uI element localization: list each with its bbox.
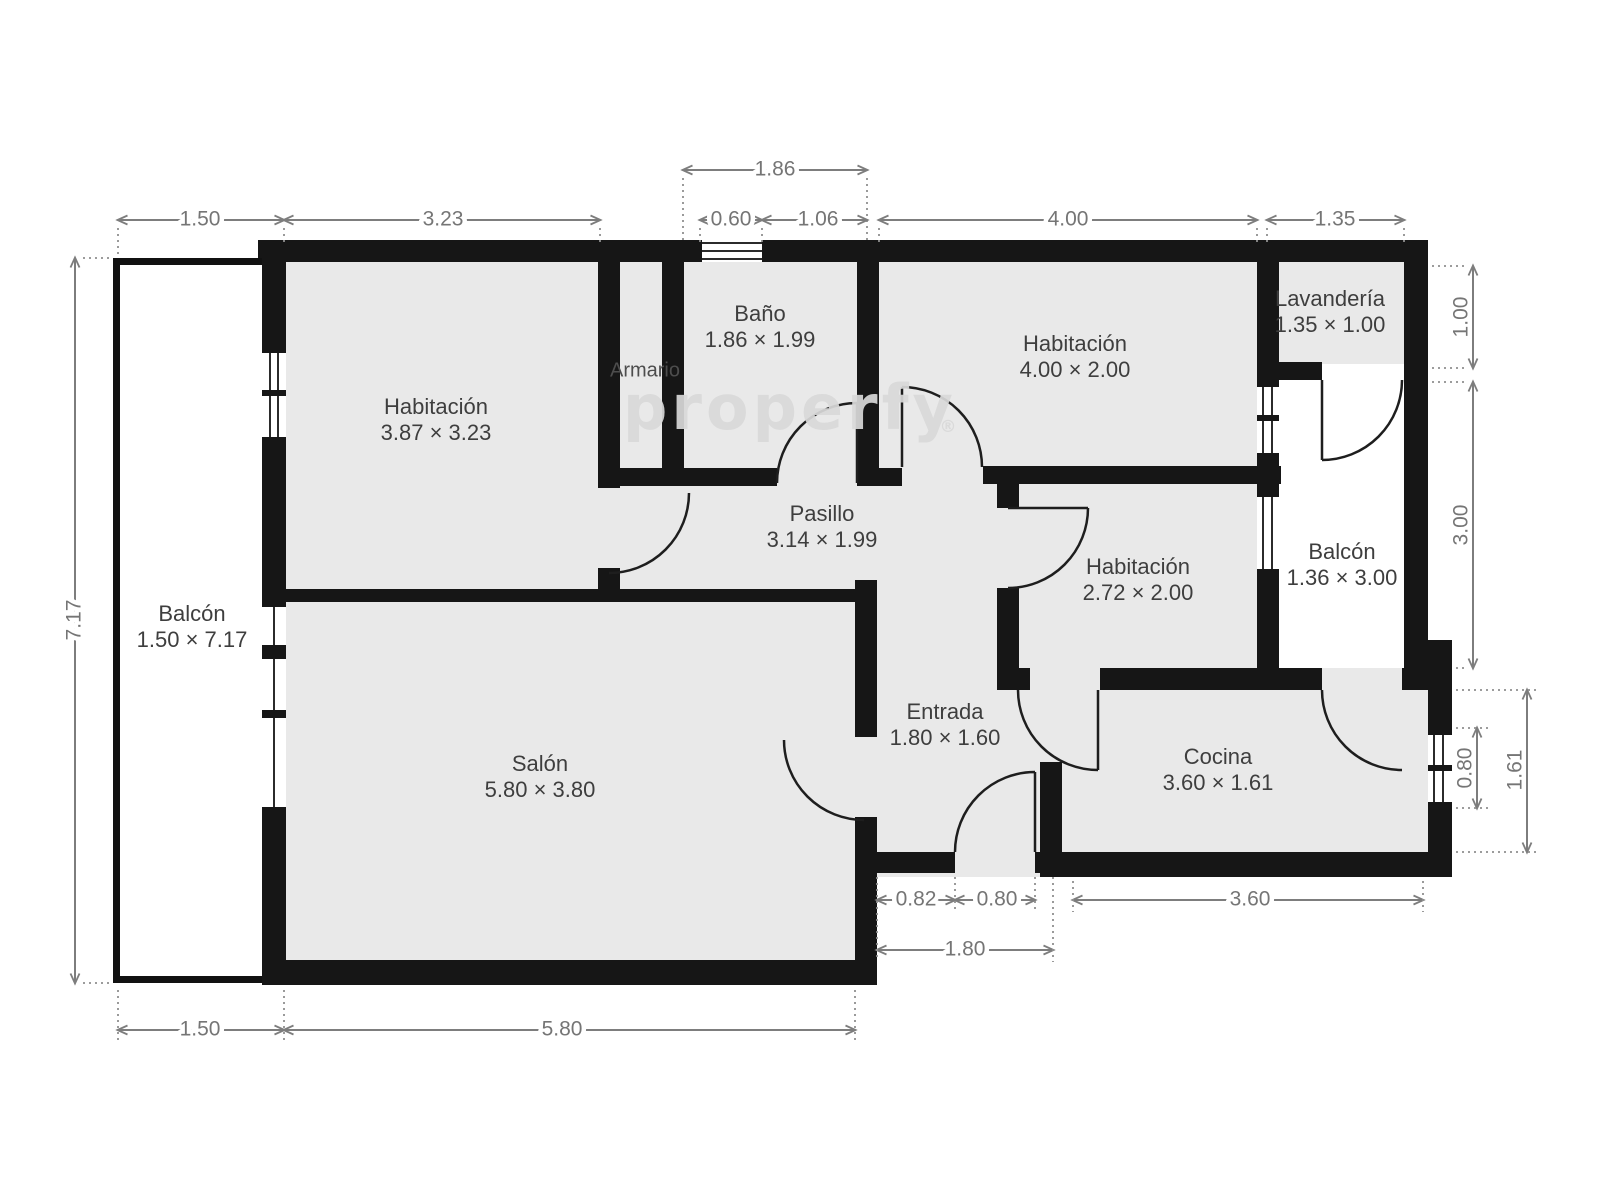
dim-top-1-06: 1.06 bbox=[798, 208, 839, 231]
wall-salon-right-a bbox=[855, 580, 877, 737]
label-habitacion-tr: Habitación 4.00 × 2.00 bbox=[1020, 331, 1131, 382]
window-habitacion-tl-icon bbox=[262, 348, 286, 442]
watermark: properfy ® bbox=[623, 371, 957, 444]
room-salon-floor bbox=[284, 589, 855, 962]
wall-entrada-cocina bbox=[1040, 762, 1062, 873]
svg-text:Habitación: Habitación bbox=[1023, 331, 1127, 356]
svg-text:Salón: Salón bbox=[512, 751, 568, 776]
window-habitacion-tr-icon bbox=[1257, 382, 1279, 458]
dim-right-1-61: 1.61 bbox=[1504, 750, 1527, 791]
dim-top-0-60: 0.60 bbox=[711, 208, 752, 231]
wall-lavanderia-bottom bbox=[1279, 362, 1322, 380]
dim-right-1-00: 1.00 bbox=[1450, 297, 1473, 338]
dim-left-7-17: 7.17 bbox=[63, 600, 86, 641]
dim-top-4-00: 4.00 bbox=[1048, 208, 1089, 231]
svg-text:1.36 × 3.00: 1.36 × 3.00 bbox=[1287, 565, 1398, 590]
dim-top-1-35: 1.35 bbox=[1315, 208, 1356, 231]
floor-plan-page: properfy ® 1.86 1.50 3.23 0.60 1.06 4.00… bbox=[0, 0, 1600, 1197]
dim-top-3-23: 3.23 bbox=[423, 208, 464, 231]
dim-top-1-86: 1.86 bbox=[755, 158, 796, 181]
wall-cocina-bottom bbox=[1040, 852, 1452, 877]
svg-text:Pasillo: Pasillo bbox=[790, 501, 855, 526]
svg-text:Habitación: Habitación bbox=[384, 394, 488, 419]
label-lavanderia: Lavandería 1.35 × 1.00 bbox=[1275, 286, 1386, 337]
wall-right-upper bbox=[1404, 240, 1428, 668]
dim-right-0-80: 0.80 bbox=[1454, 748, 1477, 789]
svg-text:Balcón: Balcón bbox=[158, 601, 225, 626]
wall-balcon-bottom-b bbox=[1402, 668, 1452, 690]
svg-text:Cocina: Cocina bbox=[1184, 744, 1253, 769]
svg-text:1.80 × 1.60: 1.80 × 1.60 bbox=[890, 725, 1001, 750]
wall-bano-bottom bbox=[598, 468, 777, 486]
room-balcon-right-floor bbox=[1279, 380, 1404, 668]
watermark-registered-icon: ® bbox=[940, 417, 957, 437]
dim-bottom-5-80: 5.80 bbox=[542, 1018, 583, 1041]
window-bano-icon bbox=[698, 240, 766, 262]
svg-text:4.00 × 2.00: 4.00 × 2.00 bbox=[1020, 357, 1131, 382]
wall-bano-right-cap bbox=[857, 468, 902, 486]
svg-text:1.86 × 1.99: 1.86 × 1.99 bbox=[705, 327, 816, 352]
wall-entrada-bottom-stub bbox=[1035, 852, 1040, 873]
wall-cocina-top-b bbox=[1100, 668, 1281, 690]
label-habitacion-mr: Habitación 2.72 × 2.00 bbox=[1083, 554, 1194, 605]
svg-text:5.80 × 3.80: 5.80 × 3.80 bbox=[485, 777, 596, 802]
window-salon-balcony-icon bbox=[262, 602, 286, 812]
wall-top bbox=[258, 240, 1428, 262]
dim-bottom-0-80: 0.80 bbox=[977, 888, 1018, 911]
dim-right-3-00: 3.00 bbox=[1450, 505, 1473, 546]
label-habitacion-tl: Habitación 3.87 × 3.23 bbox=[381, 394, 492, 445]
svg-text:Balcón: Balcón bbox=[1308, 539, 1375, 564]
wall-bottom-left bbox=[262, 960, 877, 985]
wall-salon-top bbox=[262, 589, 858, 602]
wall-balcon-bottom-a bbox=[1281, 668, 1322, 690]
svg-text:3.87 × 3.23: 3.87 × 3.23 bbox=[381, 420, 492, 445]
svg-text:Entrada: Entrada bbox=[906, 699, 984, 724]
window-habitacion-mr-icon bbox=[1257, 492, 1279, 574]
dim-bottom-1-50: 1.50 bbox=[180, 1018, 221, 1041]
dim-top-1-50: 1.50 bbox=[180, 208, 221, 231]
wall-balcony-left-outer bbox=[113, 258, 120, 983]
svg-text:Baño: Baño bbox=[734, 301, 785, 326]
wall-balcony-left-top bbox=[113, 258, 262, 265]
wall-salon-right-b bbox=[855, 817, 877, 985]
dim-bottom-1-80: 1.80 bbox=[945, 938, 986, 961]
watermark-text: properfy bbox=[623, 371, 957, 444]
wall-habtr-bottom bbox=[983, 466, 1281, 484]
wall-entrada-bottom bbox=[877, 852, 955, 873]
svg-text:2.72 × 2.00: 2.72 × 2.00 bbox=[1083, 580, 1194, 605]
window-cocina-icon bbox=[1428, 730, 1452, 807]
svg-text:3.14 × 1.99: 3.14 × 1.99 bbox=[767, 527, 878, 552]
dim-bottom-0-82: 0.82 bbox=[896, 888, 937, 911]
svg-text:1.50 × 7.17: 1.50 × 7.17 bbox=[137, 627, 248, 652]
svg-text:3.60 × 1.61: 3.60 × 1.61 bbox=[1163, 770, 1274, 795]
wall-habmr-left-a bbox=[997, 466, 1019, 508]
svg-text:Habitación: Habitación bbox=[1086, 554, 1190, 579]
dim-bottom-3-60: 3.60 bbox=[1230, 888, 1271, 911]
wall-balcony-left-bottom bbox=[113, 976, 262, 983]
floor-plan-drawing: properfy ® 1.86 1.50 3.23 0.60 1.06 4.00… bbox=[0, 0, 1600, 1197]
wall-cocina-top-a bbox=[997, 668, 1030, 690]
svg-text:1.35 × 1.00: 1.35 × 1.00 bbox=[1275, 312, 1386, 337]
svg-text:Lavandería: Lavandería bbox=[1275, 286, 1386, 311]
label-armario: Armario bbox=[610, 359, 680, 381]
